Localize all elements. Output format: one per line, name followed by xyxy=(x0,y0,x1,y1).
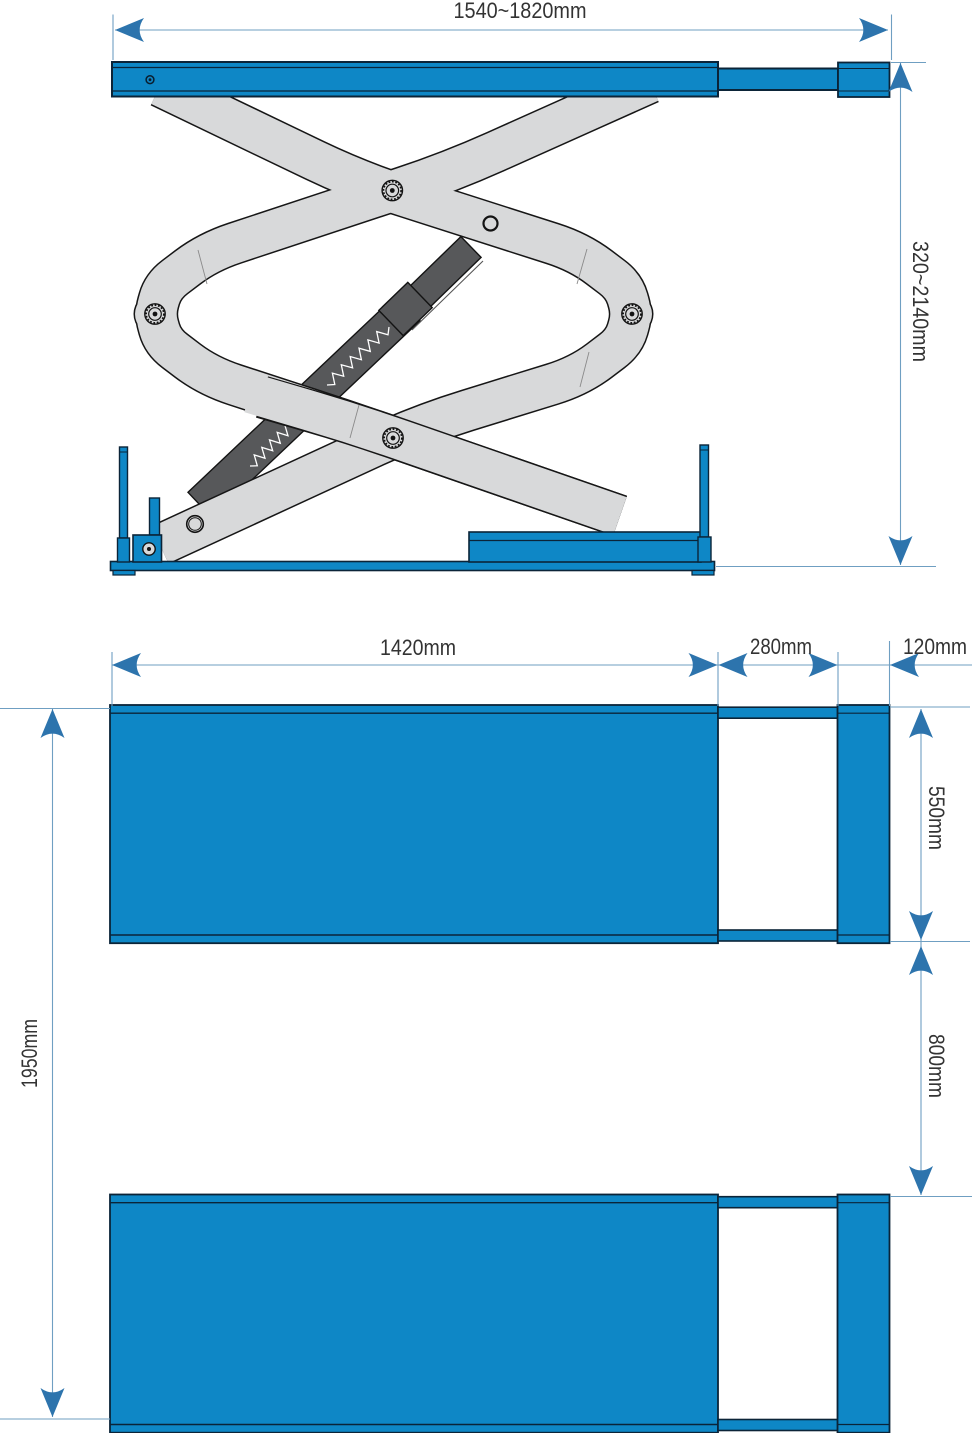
svg-text:1950mm: 1950mm xyxy=(17,1019,42,1088)
svg-text:320~2140mm: 320~2140mm xyxy=(908,241,933,362)
svg-text:280mm: 280mm xyxy=(750,634,812,659)
svg-text:120mm: 120mm xyxy=(903,634,967,659)
svg-text:1420mm: 1420mm xyxy=(380,635,456,660)
svg-text:800mm: 800mm xyxy=(924,1034,949,1098)
svg-text:550mm: 550mm xyxy=(924,786,949,850)
svg-text:1540~1820mm: 1540~1820mm xyxy=(454,0,587,23)
